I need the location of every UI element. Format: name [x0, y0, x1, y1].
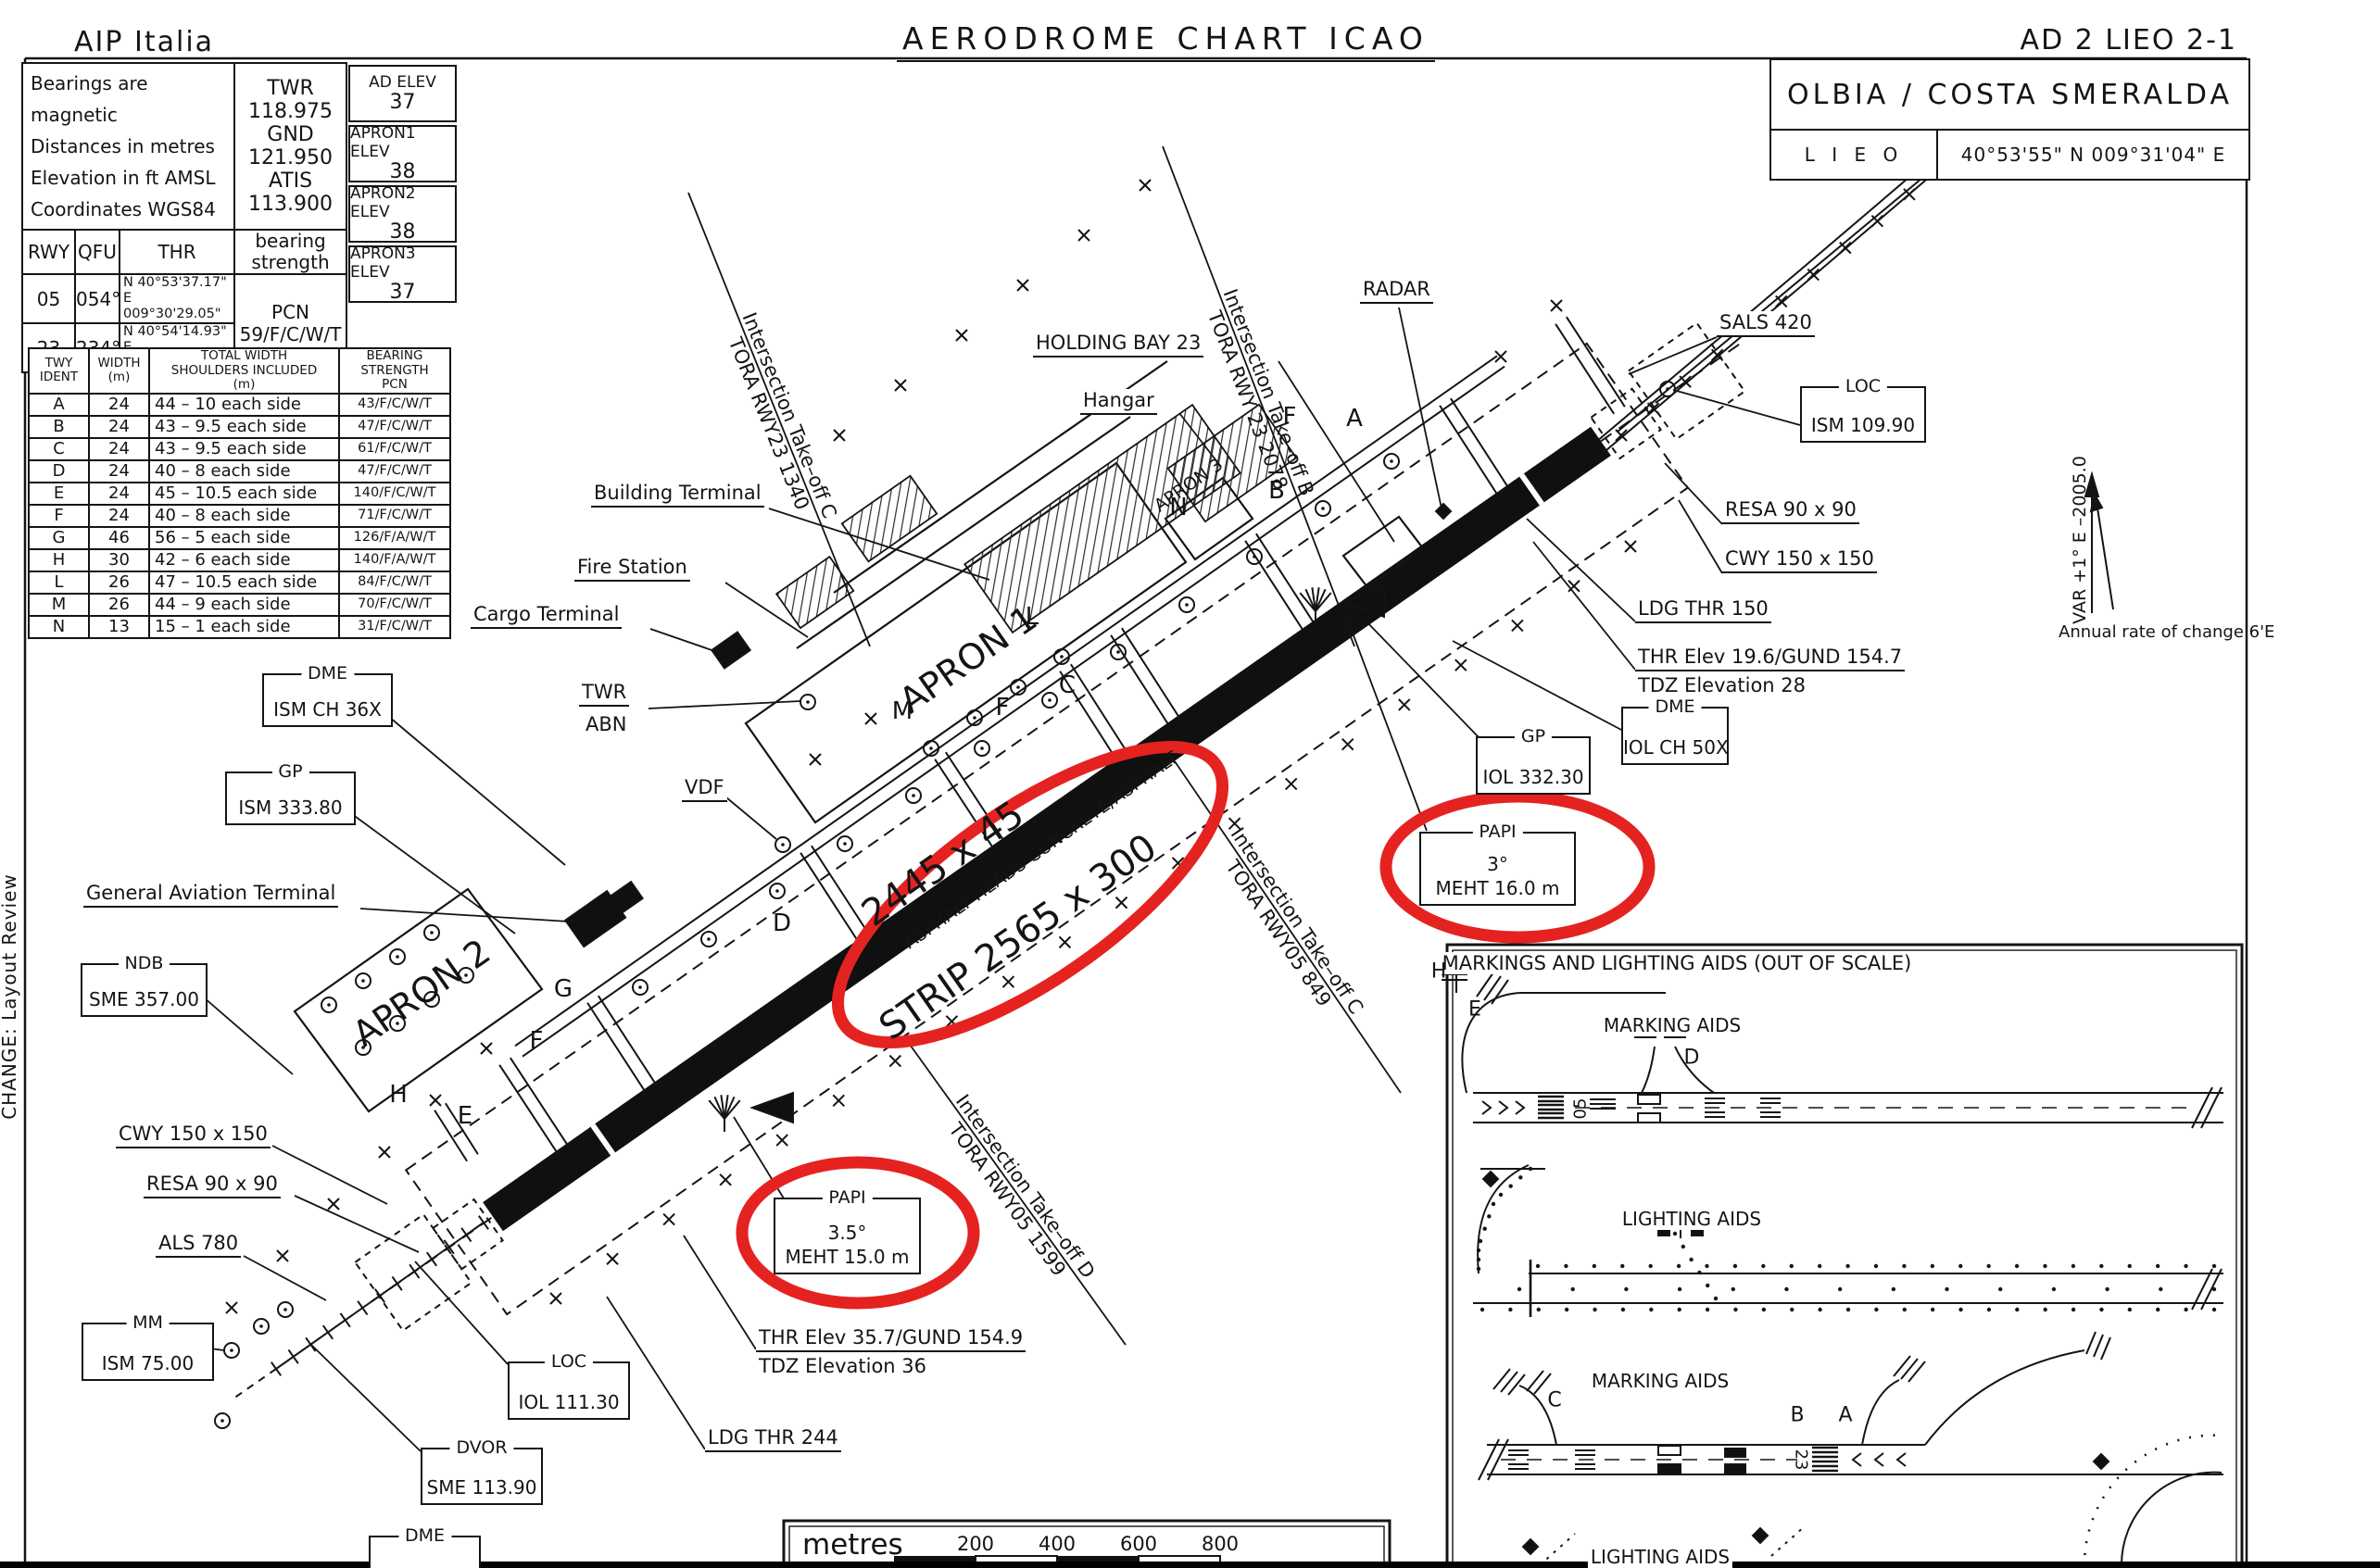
label-tdz-05-label: TDZ Elevation 36 — [756, 1355, 929, 1377]
label-als-label: ALS 780 — [156, 1232, 241, 1258]
label-mm-box: MMISM 75.00 — [82, 1323, 214, 1381]
twy-row: M2644 – 9 each side70/F/C/W/T — [29, 594, 450, 616]
taxiway-letter-a: A — [1346, 405, 1363, 433]
taxiway-letter-f: F — [530, 1027, 544, 1055]
label-cwy-23-label: CWY 150 x 150 — [1722, 547, 1877, 573]
taxiway-letter-c: C — [1059, 671, 1076, 699]
airport-name: OLBIA / COSTA SMERALDA — [1771, 60, 2248, 131]
twy-row: E2445 – 10.5 each side140/F/C/W/T — [29, 483, 450, 505]
label-tdz-23-label: TDZ Elevation 28 — [1635, 674, 1808, 696]
aerodrome-chart: AIP Italia AERODROME CHART ICAO AD 2 LIE… — [0, 0, 2380, 1568]
twy-col-header: TWYIDENT — [29, 348, 89, 394]
label-dme-ism-box: DMEISM CH 36X — [262, 673, 393, 727]
elevation-box-2: APRON2 ELEV38 — [348, 185, 457, 243]
inset-section-2: MARKING AIDS — [1589, 1370, 1731, 1392]
inset-section-1: LIGHTING AIDS — [1619, 1208, 1764, 1230]
label-thr-elev-05-label: THR Elev 35.7/GUND 154.9 — [756, 1326, 1026, 1352]
label-vdf-label: VDF — [682, 776, 727, 802]
taxiway-table: TWYIDENTWIDTH(m)TOTAL WIDTHSHOULDERS INC… — [28, 347, 451, 639]
label-dme-iol-box: DMEIOL CH 50X — [1621, 707, 1729, 765]
icao-code: L I E O — [1771, 131, 1938, 179]
col-qfu: QFU — [75, 230, 120, 274]
twy-row: L2647 – 10.5 each side84/F/C/W/T — [29, 571, 450, 594]
label-resa-05-label: RESA 90 x 90 — [144, 1173, 281, 1198]
bottom-crop-bar — [0, 1562, 2380, 1568]
label-resa-23-label: RESA 90 x 90 — [1722, 498, 1859, 524]
inset-title: MARKINGS AND LIGHTING AIDS (OUT OF SCALE… — [1440, 952, 1915, 974]
twy-row: F2440 – 8 each side71/F/C/W/T — [29, 505, 450, 527]
inset-section-0: MARKING AIDS — [1601, 1014, 1744, 1036]
inset-rwy-designator-05: 05 — [1571, 1098, 1591, 1120]
label-papi-05-box: PAPI3.5°MEHT 15.0 m — [774, 1198, 921, 1274]
inset-letter-c: C — [1547, 1389, 1561, 1412]
taxiway-letter-n: N — [1169, 494, 1187, 521]
taxiway-letter-m: M — [892, 697, 913, 725]
elevation-box-0: AD ELEV37 — [348, 65, 457, 122]
label-fire-station-label: Fire Station — [574, 556, 690, 582]
elevation-box-1: APRON1 ELEV38 — [348, 125, 457, 182]
label-gp-iol-box: GPIOL 332.30 — [1476, 736, 1591, 795]
twy-col-header: TOTAL WIDTHSHOULDERS INCLUDED(m) — [149, 348, 339, 394]
scale-unit: metres — [802, 1528, 903, 1562]
general-info-table: Bearings are magnetic Distances in metre… — [21, 62, 347, 373]
label-cargo-terminal-label: Cargo Terminal — [471, 603, 622, 629]
twy-row: A2444 – 10 each side43/F/C/W/T — [29, 394, 450, 416]
label-ldg-thr-150-label: LDG THR 150 — [1635, 597, 1771, 623]
radar-symbol — [1436, 504, 1451, 519]
taxiway-letter-g: G — [554, 975, 573, 1003]
airport-title-block: OLBIA / COSTA SMERALDA L I E O 40°53'55"… — [1769, 58, 2250, 181]
label-thr-elev-23-label: THR Elev 19.6/GUND 154.7 — [1635, 646, 1905, 671]
inset-rwy-designator-23: 23 — [1792, 1449, 1811, 1471]
page-reference: AD 2 LIEO 2-1 — [1946, 24, 2237, 56]
inset-section-3: LIGHTING AIDS — [1588, 1546, 1732, 1568]
taxiway-letter-l: L — [1026, 603, 1039, 631]
elevation-boxes: AD ELEV37APRON1 ELEV38APRON2 ELEV38APRON… — [348, 65, 457, 306]
label-holding-bay-label: HOLDING BAY 23 — [1033, 332, 1203, 358]
label-abn-label: ABN — [583, 713, 629, 735]
col-bearing-strength: bearing strength — [234, 230, 346, 274]
taxiway-letter-f: F — [1283, 403, 1297, 431]
taxiway-letter-e: E — [458, 1102, 472, 1130]
label-hangar-label: Hangar — [1080, 389, 1157, 415]
inset-markings-lighting — [1442, 945, 2242, 1568]
chart-notes: Bearings are magnetic Distances in metre… — [22, 63, 234, 230]
arp-coordinates: 40°53'55" N 009°31'04" E — [1938, 131, 2248, 179]
twy-row: G4656 – 5 each side126/F/A/W/T — [29, 527, 450, 549]
twy-row: B2443 – 9.5 each side47/F/C/W/T — [29, 416, 450, 438]
inset-letter-b: B — [1790, 1404, 1804, 1427]
twy-row: N1315 – 1 each side31/F/C/W/T — [29, 616, 450, 638]
scale-tick-400: 400 — [1037, 1533, 1077, 1555]
inset-letter-a: A — [1838, 1404, 1852, 1427]
taxiway-letter-d: D — [773, 909, 791, 937]
label-radar-label: RADAR — [1360, 278, 1433, 304]
papi-05-arrow — [752, 1093, 793, 1123]
annual-rate-of-change: Annual rate of change 6'E — [2059, 622, 2274, 642]
label-dvor-box: DVORSME 113.90 — [421, 1448, 543, 1505]
inset-letter-d: D — [1684, 1047, 1700, 1070]
label-gat-label: General Aviation Terminal — [83, 882, 338, 908]
frequencies: TWR118.975 GND121.950 ATIS113.900 — [234, 63, 346, 230]
col-rwy: RWY — [22, 230, 75, 274]
label-loc-iol-box: LOCIOL 111.30 — [508, 1361, 630, 1420]
label-twr-label: TWR — [579, 681, 629, 707]
page-title: AERODROME CHART ICAO — [897, 20, 1435, 62]
twy-row: C2443 – 9.5 each side61/F/C/W/T — [29, 438, 450, 460]
scale-tick-600: 600 — [1118, 1533, 1159, 1555]
scale-tick-800: 800 — [1200, 1533, 1240, 1555]
twy-col-header: WIDTH(m) — [89, 348, 149, 394]
label-building-terminal-label: Building Terminal — [591, 482, 764, 508]
twy-col-header: BEARINGSTRENGTHPCN — [339, 348, 450, 394]
label-dme-sw-box: DME — [369, 1536, 481, 1568]
label-papi-23-box: PAPI3°MEHT 16.0 m — [1419, 832, 1576, 906]
scale-tick-200: 200 — [955, 1533, 996, 1555]
change-note: CHANGE: Layout Review — [0, 802, 20, 1191]
magnetic-variation: VAR +1° E –2005.0 — [2070, 438, 2090, 642]
inset-letter-h: H — [1431, 960, 1447, 984]
taxiway-letter-h: H — [389, 1081, 408, 1109]
label-sals-label: SALS 420 — [1717, 311, 1815, 337]
twy-row: H3042 – 6 each side140/F/A/W/T — [29, 549, 450, 571]
label-cwy-05-label: CWY 150 x 150 — [116, 1123, 271, 1148]
inset-letter-e: E — [1468, 998, 1481, 1022]
runway-row: 05 054° N 40°53'37.17"E 009°30'29.05" PC… — [22, 274, 346, 323]
cargo-terminal — [711, 632, 750, 668]
twy-row: D2440 – 8 each side47/F/C/W/T — [29, 460, 450, 483]
fire-station — [842, 476, 937, 562]
label-ldg-thr-244-label: LDG THR 244 — [705, 1426, 841, 1452]
elevation-box-3: APRON3 ELEV37 — [348, 245, 457, 303]
publisher: AIP Italia — [74, 26, 214, 58]
label-gp-ism-box: GPISM 333.80 — [225, 771, 356, 825]
col-thr: THR — [120, 230, 234, 274]
label-ndb-box: NDBSME 357.00 — [81, 963, 208, 1017]
taxiway-letter-b: B — [1268, 477, 1285, 505]
taxiway-letter-f: F — [996, 694, 1010, 721]
label-loc-ism-box: LOCISM 109.90 — [1800, 386, 1926, 443]
